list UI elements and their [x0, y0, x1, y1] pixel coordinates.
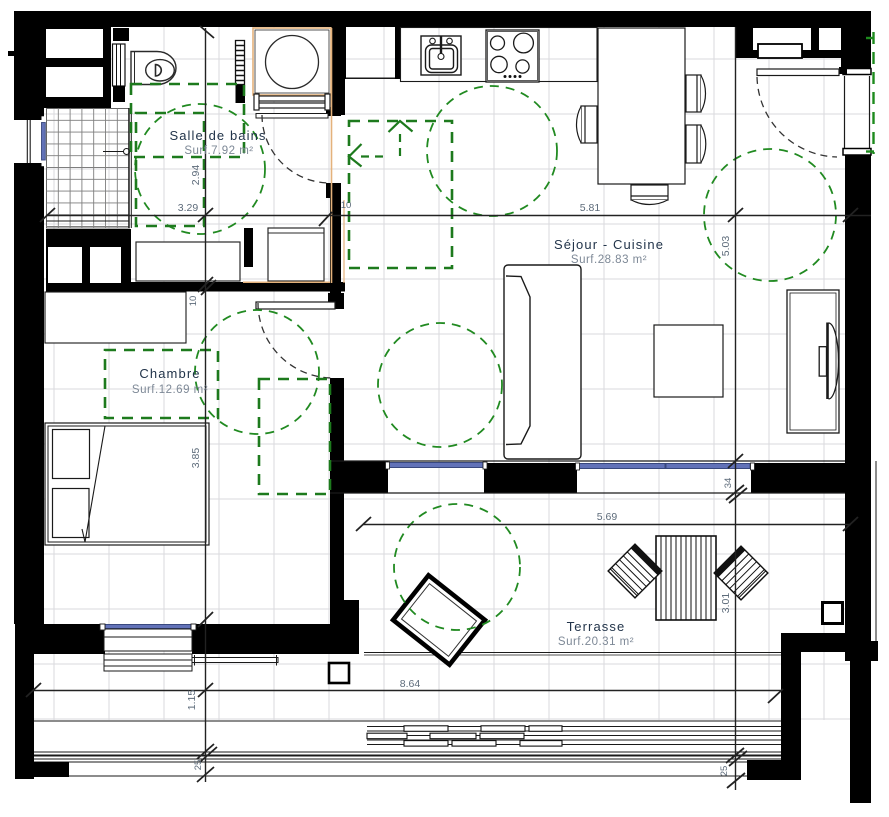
svg-text:3.85: 3.85	[190, 448, 202, 469]
svg-text:Salle de bains: Salle de bains	[169, 128, 266, 143]
svg-text:Surf.7.92 m²: Surf.7.92 m²	[184, 145, 253, 157]
svg-text:Chambre: Chambre	[139, 366, 200, 381]
svg-text:Terrasse: Terrasse	[567, 619, 626, 634]
svg-text:2.94: 2.94	[190, 165, 202, 186]
svg-text:5.03: 5.03	[720, 236, 732, 257]
svg-text:8.64: 8.64	[400, 678, 421, 690]
svg-text:Surf.28.83 m²: Surf.28.83 m²	[571, 254, 647, 266]
svg-text:25: 25	[719, 766, 730, 777]
svg-text:10: 10	[341, 200, 352, 211]
svg-text:5.69: 5.69	[597, 511, 618, 523]
svg-text:25: 25	[193, 760, 204, 771]
svg-text:3.01: 3.01	[720, 593, 732, 614]
svg-text:5.81: 5.81	[580, 202, 601, 214]
svg-text:10: 10	[188, 296, 199, 307]
svg-text:1.15: 1.15	[186, 690, 198, 711]
svg-text:Surf.12.69 m²: Surf.12.69 m²	[132, 384, 208, 396]
svg-text:Séjour - Cuisine: Séjour - Cuisine	[554, 237, 664, 252]
svg-text:3.29: 3.29	[178, 202, 199, 214]
svg-text:34: 34	[723, 478, 734, 489]
svg-text:Surf.20.31 m²: Surf.20.31 m²	[558, 636, 634, 648]
